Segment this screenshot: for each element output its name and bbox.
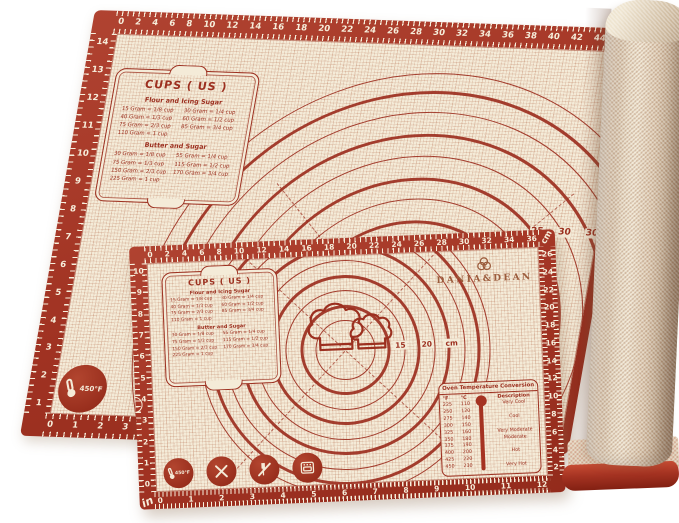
cm-unit-label: cm (539, 229, 555, 246)
baking-mat-product-photo: 0246810121416182022242628303234363840424… (0, 0, 679, 523)
flour-conversion-rows: 15 Gram = 1/8 cup30 Gram = 1/4 cup40 Gra… (113, 105, 247, 142)
cups-title: CUPS ( US ) (167, 275, 271, 288)
brand-logo-icon (475, 255, 494, 274)
no-sharp-utensils-icon (249, 454, 280, 485)
butter-conversion-rows: 30 Gram = 1/8 cup55 Gram = 1/4 cup75 Gra… (170, 329, 275, 360)
diameter-scale-cm-values: 1520 (394, 339, 434, 350)
small-mat-surface: inches 98765 1520 cm CUPS ( US ) Flour a… (147, 247, 548, 492)
no-cutting-icon (206, 456, 237, 487)
flour-conversion-rows: 15 Gram = 1/8 cup30 Gram = 1/4 cup40 Gra… (168, 294, 273, 325)
max-temp-icon: 450°F (163, 458, 194, 489)
cups-conversion-box: CUPS ( US ) Flour and Icing Sugar 15 Gra… (93, 68, 260, 206)
butter-conversion-rows: 30 Gram = 1/8 cup55 Gram = 1/4 cup75 Gra… (105, 150, 239, 187)
oven-temperature-chart: Oven Temperature Conversion °F °C Descri… (438, 379, 542, 477)
thermometer-icon (61, 377, 81, 399)
oven-chart-rows: 225110Very Cool250120275140Cool300150325… (440, 399, 541, 472)
max-temp-label: 450°F (79, 385, 103, 394)
max-temp-label: 450°F (175, 470, 190, 476)
inches-unit-label: in (140, 494, 156, 511)
cups-title: CUPS ( US ) (121, 77, 251, 94)
brand-block: DANIA&DEAN (429, 253, 540, 287)
oven-dishwasher-safe-icon (292, 452, 323, 483)
small-pastry-mat: 024681012141618202224262830323436 012345… (129, 229, 566, 510)
col-fahrenheit: °F (443, 395, 461, 402)
chef-hats-icon (296, 295, 394, 355)
cups-conversion-box-small: CUPS ( US ) Flour and Icing Sugar 15 Gra… (161, 268, 282, 388)
diameter-scale-cm-label: cm (443, 338, 460, 348)
